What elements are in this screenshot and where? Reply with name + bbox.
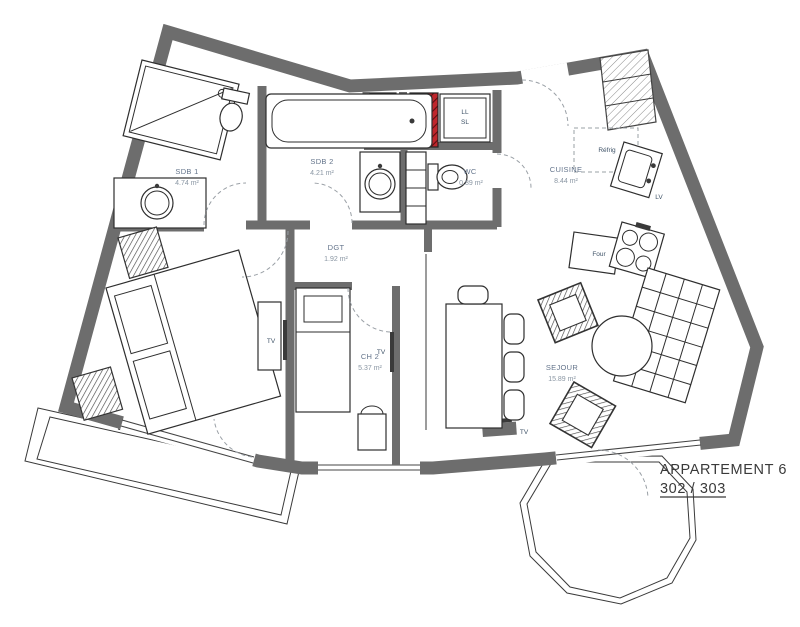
round-table: [592, 316, 652, 376]
dishwasher-label: LV: [655, 194, 663, 201]
bathtub: [266, 94, 432, 148]
room-area-sdb2: 4.21 m²: [310, 170, 334, 177]
room-label-cuisine: CUISINE: [550, 165, 583, 174]
laundry-unit: [440, 94, 490, 142]
room-label-sejour: SEJOUR: [546, 363, 579, 372]
dryer-label: SL: [461, 119, 469, 126]
floor-plan-page: SDB 1 4.74 m² SDB 2 4.21 m² WC 0.89 m² C…: [0, 0, 800, 627]
tv-label-sejour: TV: [520, 429, 529, 436]
apartment-title: APPARTEMENT 6: [660, 462, 787, 478]
room-area-ch2: 5.37 m²: [358, 365, 382, 372]
balcony-southeast-bay: [520, 456, 696, 604]
kitchen-sink: [611, 142, 663, 198]
floor-plan-svg: SDB 1 4.74 m² SDB 2 4.21 m² WC 0.89 m² C…: [0, 0, 800, 627]
washer-label: LL: [461, 109, 469, 116]
fridge-label: Réfrig: [598, 147, 616, 154]
armchair: [538, 283, 598, 343]
room-area-sdb1: 4.74 m²: [175, 180, 199, 187]
wc-fixtures: [406, 152, 467, 224]
nightstand: [118, 227, 168, 278]
armchair: [550, 382, 616, 448]
tv-ch2: [390, 332, 394, 372]
tv-label-ch1: TV: [267, 338, 276, 345]
room-area-cuisine: 8.44 m²: [554, 178, 578, 185]
kitchen-cabinet: [600, 50, 656, 130]
room-label-dgt: DGT: [328, 243, 345, 252]
room-area-sejour: 15.89 m²: [548, 376, 576, 383]
room-label-wc: WC: [463, 167, 476, 176]
tv-label-ch2: TV: [377, 349, 386, 356]
room-area-wc: 0.89 m²: [459, 180, 483, 187]
nightstand-ch2: [358, 406, 386, 450]
tv-sideboard-ch1: [258, 302, 287, 370]
oven-label: Four: [592, 251, 606, 258]
apartment-units: 302 / 303: [660, 481, 726, 497]
vanity-sdb2: [360, 152, 400, 212]
hob: [609, 218, 665, 278]
room-label-sdb1: SDB 1: [175, 167, 198, 176]
room-area-dgt: 1.92 m²: [324, 256, 348, 263]
dining-table: [446, 286, 524, 428]
room-label-sdb2: SDB 2: [310, 157, 333, 166]
title-block: APPARTEMENT 6 302 / 303: [660, 462, 787, 497]
single-bed: [296, 288, 350, 412]
